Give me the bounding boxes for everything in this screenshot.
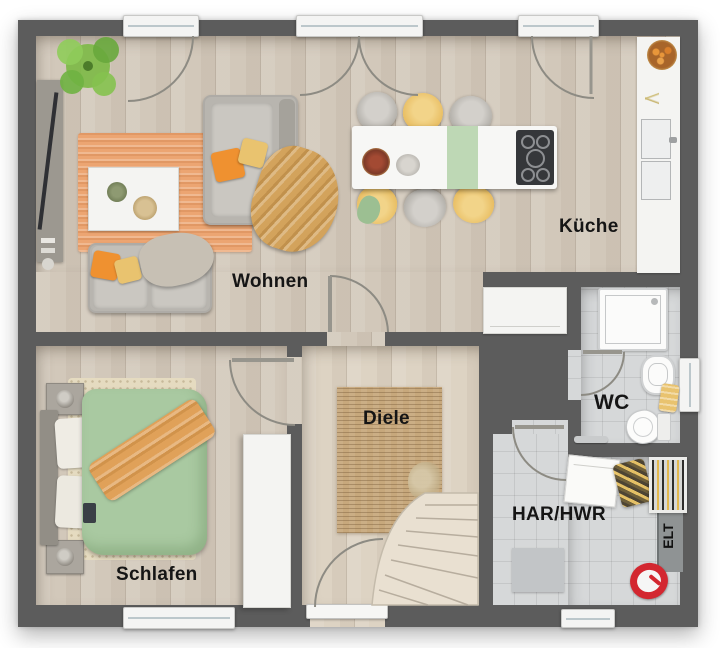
table-runner (447, 126, 478, 189)
lamp-icon (56, 390, 74, 408)
wardrobe (243, 434, 291, 608)
kitchen-island (352, 126, 557, 189)
tv-sideboard (37, 80, 63, 262)
floor-mat (512, 548, 564, 592)
sink-basin-2 (641, 161, 671, 200)
room-label-living: Wohnen (232, 271, 308, 293)
room-label-elt: ELT (660, 516, 676, 556)
towel-rail (574, 436, 608, 443)
door-opening-living-hall (327, 332, 385, 346)
window-bedroom (123, 607, 235, 629)
cooktop (516, 130, 554, 185)
towel-yellow (658, 383, 680, 413)
fruit-bowl (647, 40, 677, 70)
window-kitchen (518, 15, 599, 37)
drying-rack (649, 457, 687, 513)
room-label-hall: Diele (363, 408, 410, 430)
door-opening-utility (512, 420, 568, 434)
door-opening-wc (568, 350, 581, 400)
coffee-table (88, 167, 179, 231)
lamp-icon (56, 548, 74, 566)
room-label-kitchen: Küche (559, 216, 619, 238)
door-opening-bedroom (287, 357, 302, 424)
fridge (483, 287, 567, 334)
entry-door (306, 604, 388, 619)
room-label-wc: WC (594, 391, 630, 415)
phone (83, 503, 96, 523)
nightstand-bottom (46, 540, 84, 574)
kitchen-counter (637, 37, 680, 273)
room-label-utility: HAR/HWR (512, 504, 606, 526)
sink-basin-1 (641, 119, 671, 159)
room-label-bedroom: Schlafen (116, 564, 198, 586)
washing-machine (564, 454, 621, 507)
shower (598, 288, 668, 351)
window-wc (679, 358, 700, 412)
window-utility (561, 609, 615, 628)
toilet-cistern (657, 413, 671, 441)
twig-decor (645, 77, 659, 123)
floor-plan: Wohnen Küche Schlafen Diele WC HAR/HWR E… (0, 0, 720, 648)
window-living-2 (296, 15, 423, 37)
faucet (669, 137, 677, 143)
window-living-1 (123, 15, 199, 37)
